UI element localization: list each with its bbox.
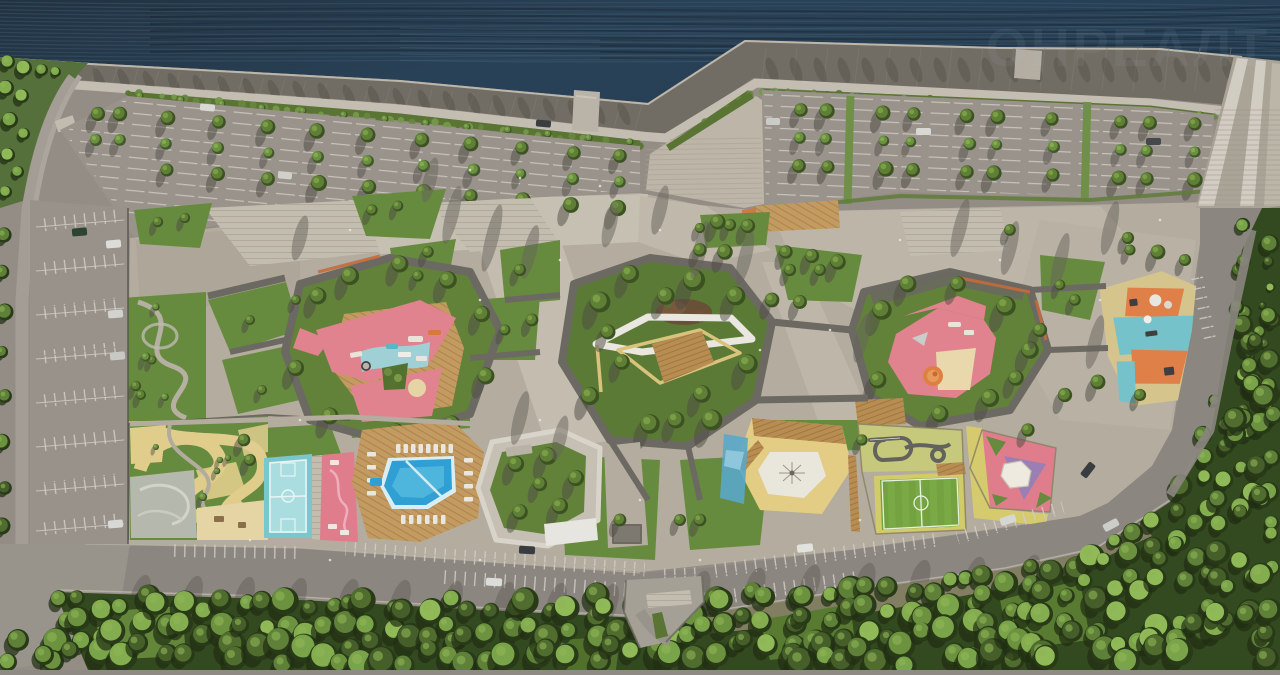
svg-text:ОНРЕАЛТ: ОНРЕАЛТ	[986, 18, 1271, 78]
